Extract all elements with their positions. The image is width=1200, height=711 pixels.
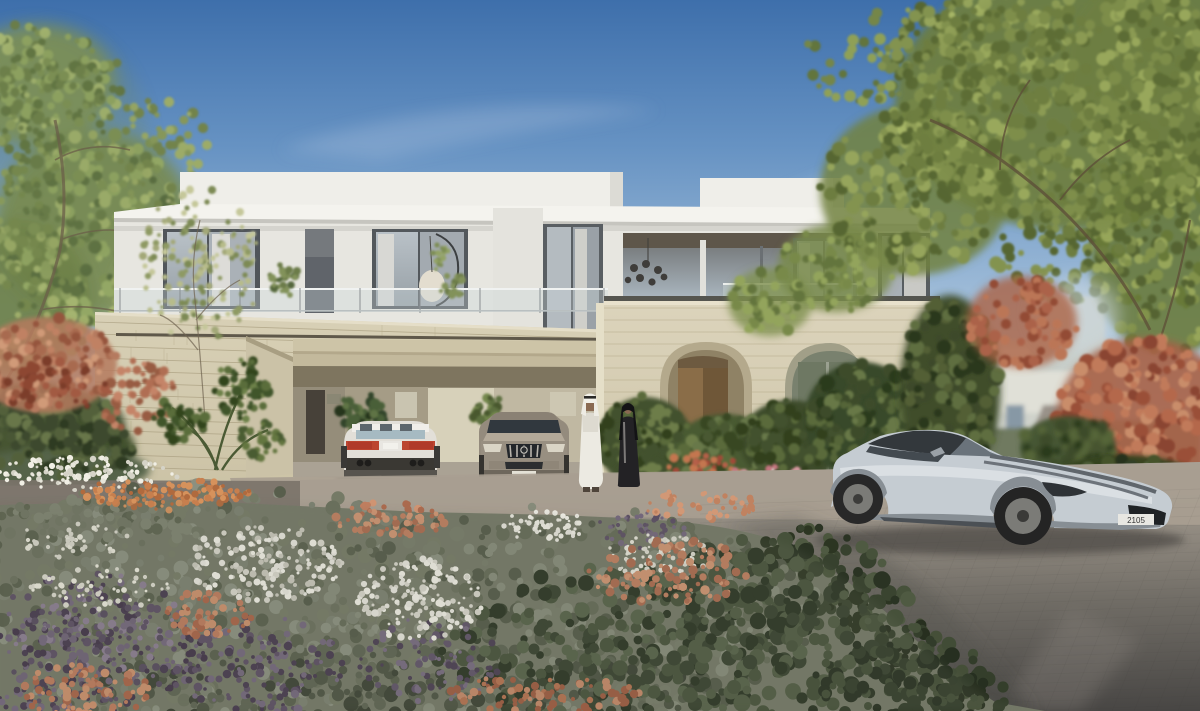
svg-text:2105: 2105 bbox=[1127, 516, 1145, 525]
